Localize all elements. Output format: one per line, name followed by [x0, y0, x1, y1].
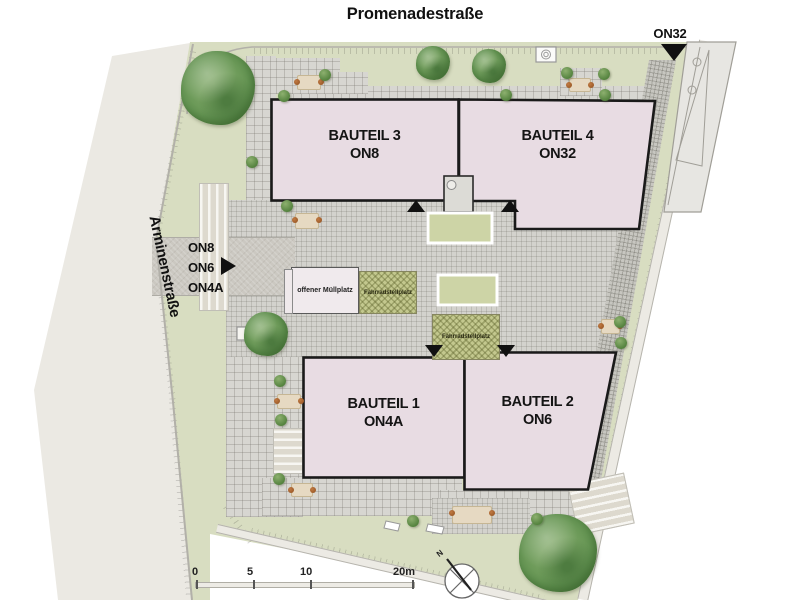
patio-table	[295, 213, 319, 229]
tree	[244, 312, 288, 356]
stair-core	[444, 176, 473, 212]
entrance-marker-bauteil-1	[425, 345, 443, 357]
patio-table	[291, 483, 313, 497]
entrance-label-on32: ON32	[645, 26, 695, 41]
bush	[615, 337, 627, 349]
bush	[599, 89, 611, 101]
building-name: BAUTEIL 3	[271, 128, 458, 146]
scale-tick-label-20: 20m	[393, 566, 415, 578]
building-label-bauteil-3: BAUTEIL 3 ON8	[271, 128, 458, 163]
bush	[273, 473, 285, 485]
building-unit: ON4A	[303, 414, 464, 432]
walkway-plate-1	[384, 521, 400, 531]
bush	[319, 69, 331, 81]
bush	[278, 90, 290, 102]
scale-bar-tick	[310, 580, 312, 589]
building-name: BAUTEIL 1	[303, 396, 464, 414]
bush	[275, 414, 287, 426]
compass-rose	[445, 559, 479, 598]
tree	[181, 51, 255, 125]
scale-tick-label-10: 10	[300, 566, 312, 578]
bush	[246, 156, 258, 168]
bush	[274, 375, 286, 387]
bush	[407, 515, 419, 527]
entrance-marker-on32	[661, 44, 687, 61]
building-unit: ON6	[465, 412, 610, 430]
building-name: BAUTEIL 4	[470, 128, 645, 146]
building-unit: ON32	[470, 146, 645, 164]
scale-tick-label-0: 0	[192, 566, 198, 578]
muellplatz-side-bins	[284, 269, 293, 314]
scale-bar-tick	[196, 580, 198, 589]
scale-bar-tick	[412, 580, 414, 589]
bush	[531, 513, 543, 525]
fahrradstellplatz-label-2: Fahrradstellplatz	[442, 334, 490, 340]
site-plan: offener Müllplatz Fahrradstellplatz Fahr…	[0, 0, 800, 600]
fahrradstellplatz-label-1: Fahrradstellplatz	[364, 290, 412, 296]
muellplatz-label: offener Müllplatz	[297, 287, 353, 294]
neighbor-structure	[664, 42, 736, 212]
building-label-bauteil-1: BAUTEIL 1 ON4A	[303, 396, 464, 431]
muellplatz-box: offener Müllplatz	[291, 267, 359, 314]
utility-box-top	[536, 47, 556, 62]
building-name: BAUTEIL 2	[465, 394, 610, 412]
scale-bar-tick	[253, 580, 255, 589]
entrance-marker-bauteil-4	[501, 200, 519, 212]
building-unit: ON8	[271, 146, 458, 164]
entrance-label-on6: ON6	[188, 258, 223, 278]
patio-table	[277, 394, 301, 409]
bush	[500, 89, 512, 101]
entrance-labels-left: ON8 ON6 ON4A	[188, 238, 223, 298]
curb-street-edge	[156, 44, 193, 600]
bush	[561, 67, 573, 79]
tree	[519, 514, 597, 592]
building-label-bauteil-2: BAUTEIL 2 ON6	[465, 394, 610, 429]
entrance-label-on8: ON8	[188, 238, 223, 258]
walkway-plate-2	[426, 524, 444, 534]
tree	[472, 49, 506, 83]
entrance-marker-bauteil-2	[497, 345, 515, 357]
scale-bar-line	[195, 582, 415, 588]
street-label-promenadestrasse: Promenadestraße	[265, 5, 565, 24]
patio-table	[452, 506, 492, 524]
planter-courtyard-lower	[438, 275, 497, 305]
patio-table	[297, 75, 321, 90]
building-label-bauteil-4: BAUTEIL 4 ON32	[470, 128, 645, 163]
tree	[416, 46, 450, 80]
building-bauteil-4-footprint	[459, 100, 655, 230]
bush	[598, 68, 610, 80]
patio-table	[569, 78, 591, 92]
entrance-marker-bauteil-3	[407, 200, 425, 212]
bush	[614, 316, 626, 328]
entrance-label-on4a: ON4A	[188, 278, 223, 298]
planter-courtyard-upper	[428, 213, 492, 243]
bush	[281, 200, 293, 212]
scale-tick-label-5: 5	[247, 566, 253, 578]
scale-bar: 0 5 10 20m	[195, 566, 425, 592]
fahrradstellplatz-box-1: Fahrradstellplatz	[359, 271, 417, 314]
